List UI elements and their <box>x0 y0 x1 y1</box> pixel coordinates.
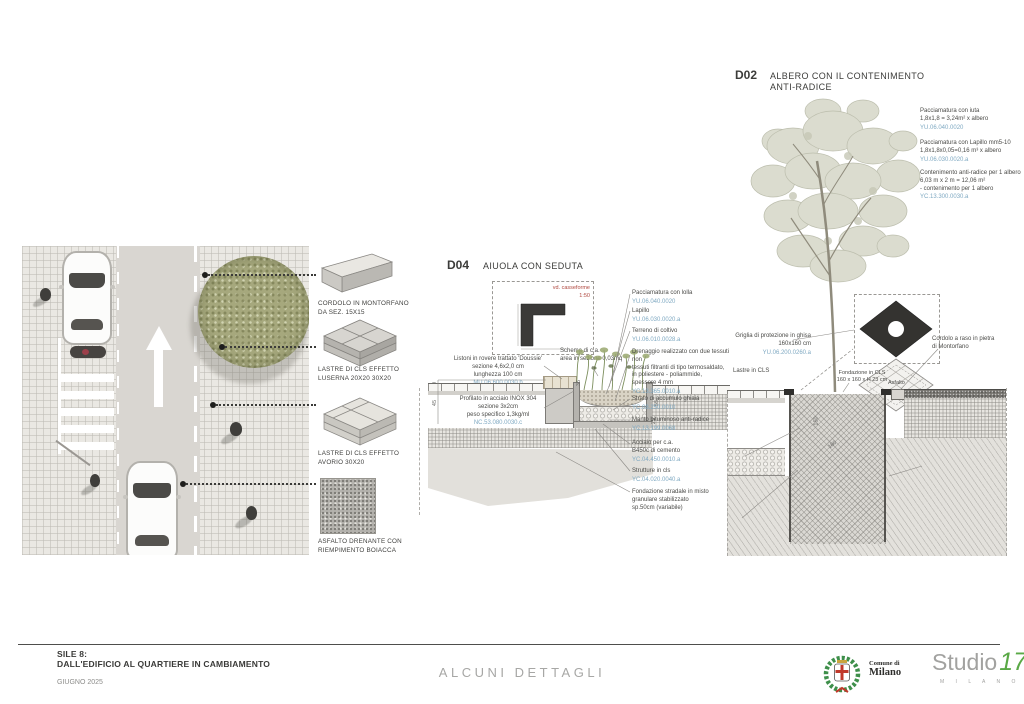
leader-line-2 <box>225 346 316 348</box>
motorcycle-rider <box>82 349 89 355</box>
d02-label-asfalto: Asfalto <box>888 380 905 387</box>
lane-line-left <box>117 246 119 555</box>
d02-edge-cap-left <box>784 389 794 395</box>
leader-line-4 <box>186 483 316 485</box>
studio-logo-name: Studio <box>932 649 997 675</box>
d04-title: AIUOLA CON SEDUTA <box>483 261 583 272</box>
car-top-view <box>62 251 112 345</box>
comune-milano-logo: Comune di Milano <box>820 650 950 700</box>
car2-mirror-right <box>176 495 181 499</box>
d04-ra-lapillo: LapilloYU.06.030.0020.a <box>632 308 732 325</box>
legend-label-cordolo: CORDOLO IN MONTORFANO DA SEZ. 15X15 <box>318 300 423 317</box>
avorio-slabs-icon <box>320 396 400 448</box>
leader-line-3 <box>216 404 316 406</box>
d02-boundary-left <box>727 394 728 556</box>
d04-lshape-plan <box>515 300 571 350</box>
legend-graphic-asfalto <box>320 478 376 534</box>
sheet-center-title: ALCUNI DETTAGLI <box>412 665 632 680</box>
d02-label-griglia: Griglia di protezione in ghisa 160x160 c… <box>723 333 811 357</box>
d04-ra-ghiaia: Strato di accumulo ghiaiaYC.08.250.0010 <box>632 396 732 413</box>
car2-mirror-left <box>123 495 128 499</box>
studio-logo-number: 17 <box>999 648 1024 676</box>
sheet-title-block: SILE 8: DALL'EDIFICIO AL QUARTIERE IN CA… <box>57 649 270 686</box>
plan-view <box>22 246 309 555</box>
cast-iron-grate-icon <box>856 298 936 360</box>
d02-ta-lapillo: Pacciamatura con Lapillo mm5-10 1,8x1,8x… <box>920 140 1022 164</box>
d04-planter-wall-left <box>573 382 580 426</box>
d02-membrane-right <box>884 394 886 542</box>
leader-line-1 <box>208 274 316 276</box>
sheet-title: DALL'EDIFICIO AL QUARTIERE IN CAMBIAMENT… <box>57 659 270 669</box>
car-rear-window-2 <box>135 535 169 546</box>
footer-divider <box>18 644 1000 645</box>
comune-crest-icon <box>820 650 864 698</box>
legend-label-avorio: LASTRE DI CLS EFFETTO AVORIO 30X20 <box>318 450 423 467</box>
legend-graphic-luserna <box>320 318 400 370</box>
d02-dim-150: 150 <box>814 416 820 425</box>
d02-drainage-gravel <box>727 448 785 476</box>
pedestrian <box>40 288 51 301</box>
sheet-date: GIUGNO 2025 <box>57 679 270 686</box>
car-top-view-2 <box>126 461 178 555</box>
d04-annotation-profilato: Profilato in acciaio INOX 304 sezione 3x… <box>452 396 544 428</box>
d02-membrane-left <box>789 394 791 542</box>
d02-ta-contenimento: Contenimento anti-radice per 1 albero 6,… <box>920 170 1022 202</box>
d02-label-cordolo: Cordolo a raso in pietra di Montorfano <box>932 336 1012 352</box>
d02-label-lastre: Lastre in CLS <box>733 368 769 376</box>
comune-logo-text: Comune di Milano <box>869 660 901 679</box>
pedestrian-3 <box>90 474 100 487</box>
sheet-code: SILE 8: <box>57 649 270 659</box>
d04-code: D04 <box>447 258 469 272</box>
d02-tree-pit <box>790 394 886 544</box>
d02-cordolo-block <box>891 389 905 400</box>
d04-dim-35: 35 <box>576 380 582 386</box>
d04-ra-strutture: Strutture in clsYC.04.020.0040.a <box>632 468 732 485</box>
d02-right-subbase <box>904 398 1006 438</box>
car-rear-window <box>71 319 103 330</box>
d02-boundary-right <box>1006 388 1007 556</box>
d04-granular-foundation <box>428 448 654 510</box>
d02-ta-iuta: Pacciamatura con iuta 1,8x1,8 = 3,24m² x… <box>920 108 1022 132</box>
car-windshield <box>69 273 105 288</box>
car-mirror-left <box>59 285 64 289</box>
d04-ra-pacciamatura: Pacciamatura con lollaYU.06.040.0020 <box>632 290 732 307</box>
legend-label-luserna: LASTRE DI CLS EFFETTO LUSERNA 20X20 30X2… <box>318 366 423 383</box>
d04-boundary-dashed <box>419 388 420 515</box>
tree-canopy <box>198 256 309 368</box>
motorcycle-icon <box>70 346 106 358</box>
d04-ra-manto: Manto bituminoso anti-radiceYC.13.199.00… <box>632 417 732 434</box>
d04-bedding-layer <box>428 391 547 395</box>
crosswalk-stripes <box>60 374 114 452</box>
d04-ra-drenaggio: Drenaggio realizzato con due tessuti non… <box>632 349 736 397</box>
studio-logo-city: M I L A N O <box>940 679 1022 685</box>
legend-label-asfalto: ASFALTO DRENANTE CON RIEMPIMENTO BOIACCA <box>318 538 423 555</box>
car-windshield-2 <box>133 483 171 498</box>
direction-arrow-shaft <box>154 349 163 407</box>
d02-bedding <box>727 398 785 403</box>
legend-graphic-avorio <box>320 396 400 448</box>
d04-inset-note: vd. casseforme 1:50 <box>553 285 590 300</box>
lane-line-right <box>194 246 197 555</box>
d02-code: D02 <box>735 68 757 82</box>
legend-graphic-cordolo <box>318 250 396 296</box>
d04-concrete-base <box>545 388 575 424</box>
drawing-sheet: CORDOLO IN MONTORFANO DA SEZ. 15X15 LAST… <box>0 0 1024 704</box>
direction-arrow-head <box>146 326 172 350</box>
luserna-slabs-icon <box>320 318 400 370</box>
d04-dim-45: 45 <box>432 400 438 406</box>
d04-stabilized-layer <box>428 428 652 448</box>
studio-17-logo: Studio17 M I L A N O <box>932 648 1022 700</box>
car-mirror-right <box>110 285 115 289</box>
d02-edge-cap-right <box>881 389 891 395</box>
d04-ra-terreno: Terreno di coltivoYU.06.010.0028.a <box>632 328 732 345</box>
d04-ra-acciaio: Acciaio per c.a. B450c di cementoYC.04.4… <box>632 440 732 464</box>
d04-ra-fondazione: Fondazione stradale in misto granulare s… <box>632 489 732 513</box>
pedestrian-2 <box>230 422 242 436</box>
cordolo-block-icon <box>318 250 396 296</box>
pedestrian-4 <box>246 506 257 520</box>
